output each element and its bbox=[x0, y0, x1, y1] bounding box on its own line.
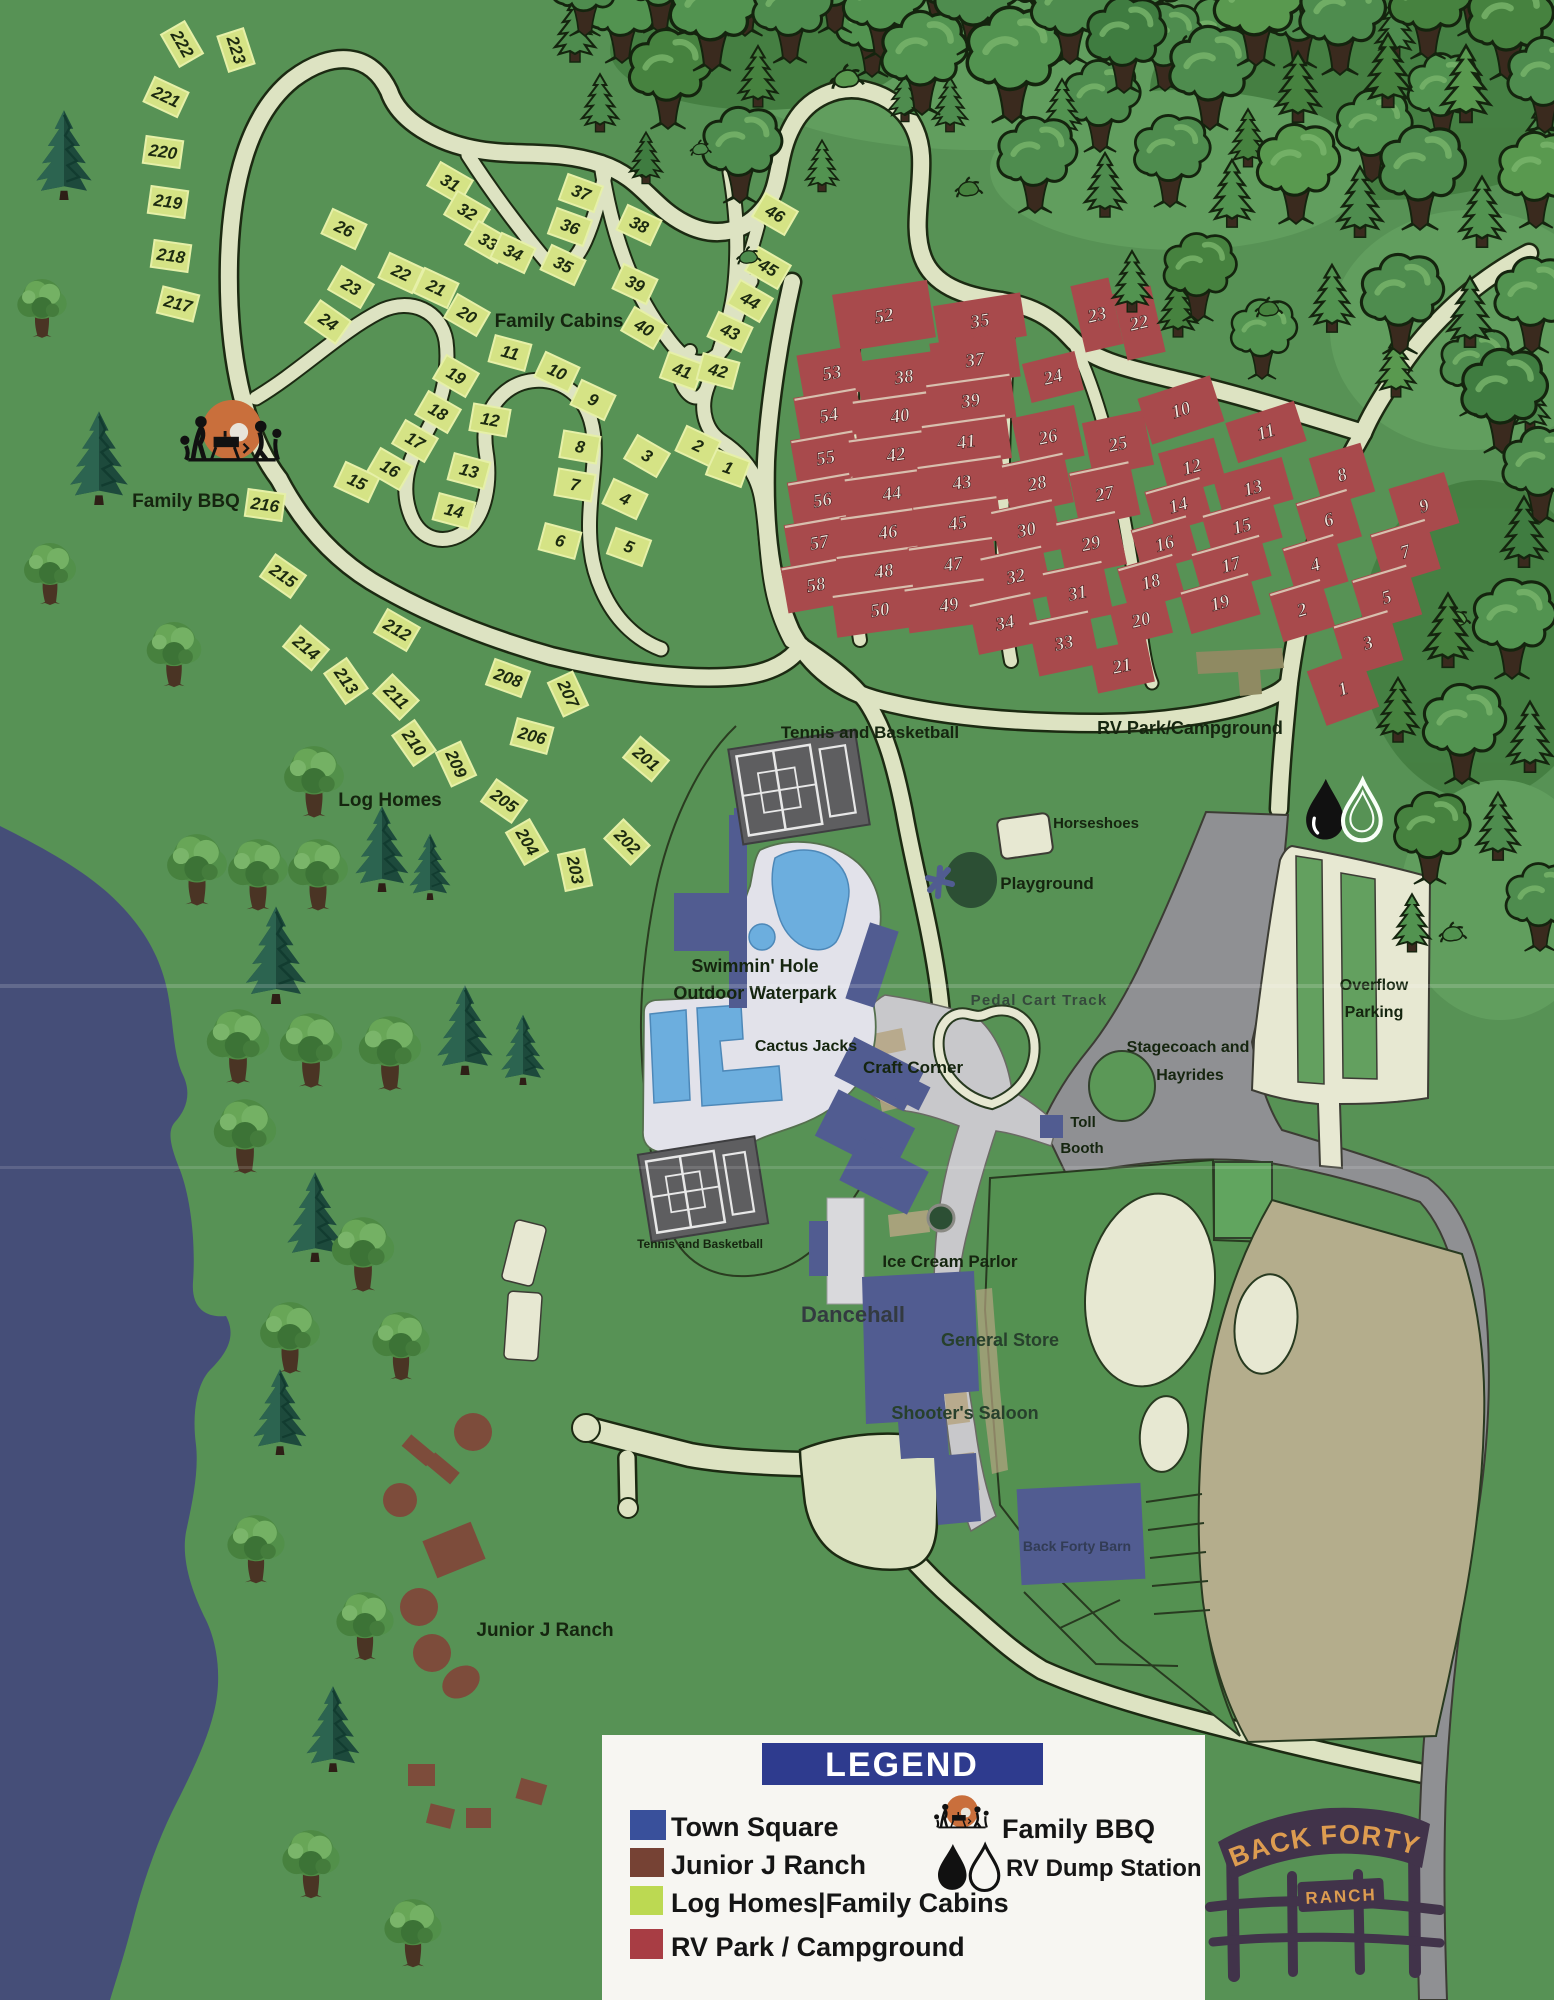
svg-text:39: 39 bbox=[959, 390, 982, 414]
svg-text:Hayrides: Hayrides bbox=[1156, 1067, 1224, 1084]
svg-text:Ice Cream Parlor: Ice Cream Parlor bbox=[882, 1252, 1018, 1271]
svg-text:35: 35 bbox=[968, 310, 992, 334]
svg-text:48: 48 bbox=[872, 560, 895, 584]
svg-text:Town Square: Town Square bbox=[671, 1812, 839, 1842]
svg-text:Playground: Playground bbox=[1000, 874, 1094, 893]
svg-text:RANCH: RANCH bbox=[1305, 1885, 1377, 1908]
svg-text:Junior J Ranch: Junior J Ranch bbox=[476, 1620, 613, 1641]
svg-text:Log Homes: Log Homes bbox=[338, 790, 441, 811]
svg-text:Family BBQ: Family BBQ bbox=[1002, 1814, 1155, 1844]
svg-text:52: 52 bbox=[873, 305, 896, 329]
svg-text:Back Forty Barn: Back Forty Barn bbox=[1023, 1538, 1131, 1554]
svg-text:53: 53 bbox=[821, 362, 843, 386]
svg-text:Parking: Parking bbox=[1345, 1004, 1404, 1021]
svg-text:Dancehall: Dancehall bbox=[801, 1302, 905, 1327]
svg-text:Family Cabins: Family Cabins bbox=[495, 311, 624, 332]
svg-text:45: 45 bbox=[946, 512, 969, 536]
svg-text:General Store: General Store bbox=[941, 1330, 1059, 1350]
svg-text:Junior J Ranch: Junior J Ranch bbox=[671, 1850, 866, 1880]
svg-text:RV Park/Campground: RV Park/Campground bbox=[1097, 718, 1283, 738]
svg-text:12: 12 bbox=[479, 409, 501, 431]
svg-text:Craft Corner: Craft Corner bbox=[863, 1058, 964, 1077]
svg-text:40: 40 bbox=[888, 405, 911, 429]
svg-text:50: 50 bbox=[869, 599, 891, 623]
svg-text:44: 44 bbox=[880, 482, 903, 506]
svg-text:Horseshoes: Horseshoes bbox=[1053, 815, 1139, 832]
svg-text:RV Dump Station: RV Dump Station bbox=[1006, 1855, 1202, 1882]
svg-text:42: 42 bbox=[884, 443, 907, 467]
svg-text:Shooter's Saloon: Shooter's Saloon bbox=[891, 1403, 1038, 1423]
svg-text:Pedal Cart Track: Pedal Cart Track bbox=[971, 992, 1108, 1009]
svg-text:43: 43 bbox=[950, 471, 973, 495]
svg-text:Stagecoach and: Stagecoach and bbox=[1127, 1039, 1250, 1056]
svg-text:Swimmin' Hole: Swimmin' Hole bbox=[691, 956, 818, 976]
svg-text:Log Homes|Family Cabins: Log Homes|Family Cabins bbox=[671, 1888, 1009, 1918]
svg-text:46: 46 bbox=[876, 521, 899, 545]
svg-text:RV Park / Campground: RV Park / Campground bbox=[671, 1932, 965, 1962]
svg-text:41: 41 bbox=[955, 430, 978, 454]
svg-text:49: 49 bbox=[937, 594, 960, 618]
svg-text:54: 54 bbox=[818, 404, 840, 428]
svg-text:Booth: Booth bbox=[1060, 1140, 1103, 1157]
svg-text:LEGEND: LEGEND bbox=[825, 1746, 979, 1784]
svg-text:Tennis and Basketball: Tennis and Basketball bbox=[781, 723, 959, 742]
svg-text:Tennis and Basketball: Tennis and Basketball bbox=[637, 1237, 763, 1251]
svg-text:38: 38 bbox=[892, 366, 915, 390]
svg-text:Cactus Jacks: Cactus Jacks bbox=[755, 1038, 857, 1055]
svg-text:Toll: Toll bbox=[1070, 1114, 1096, 1131]
svg-text:Family BBQ: Family BBQ bbox=[132, 491, 240, 512]
